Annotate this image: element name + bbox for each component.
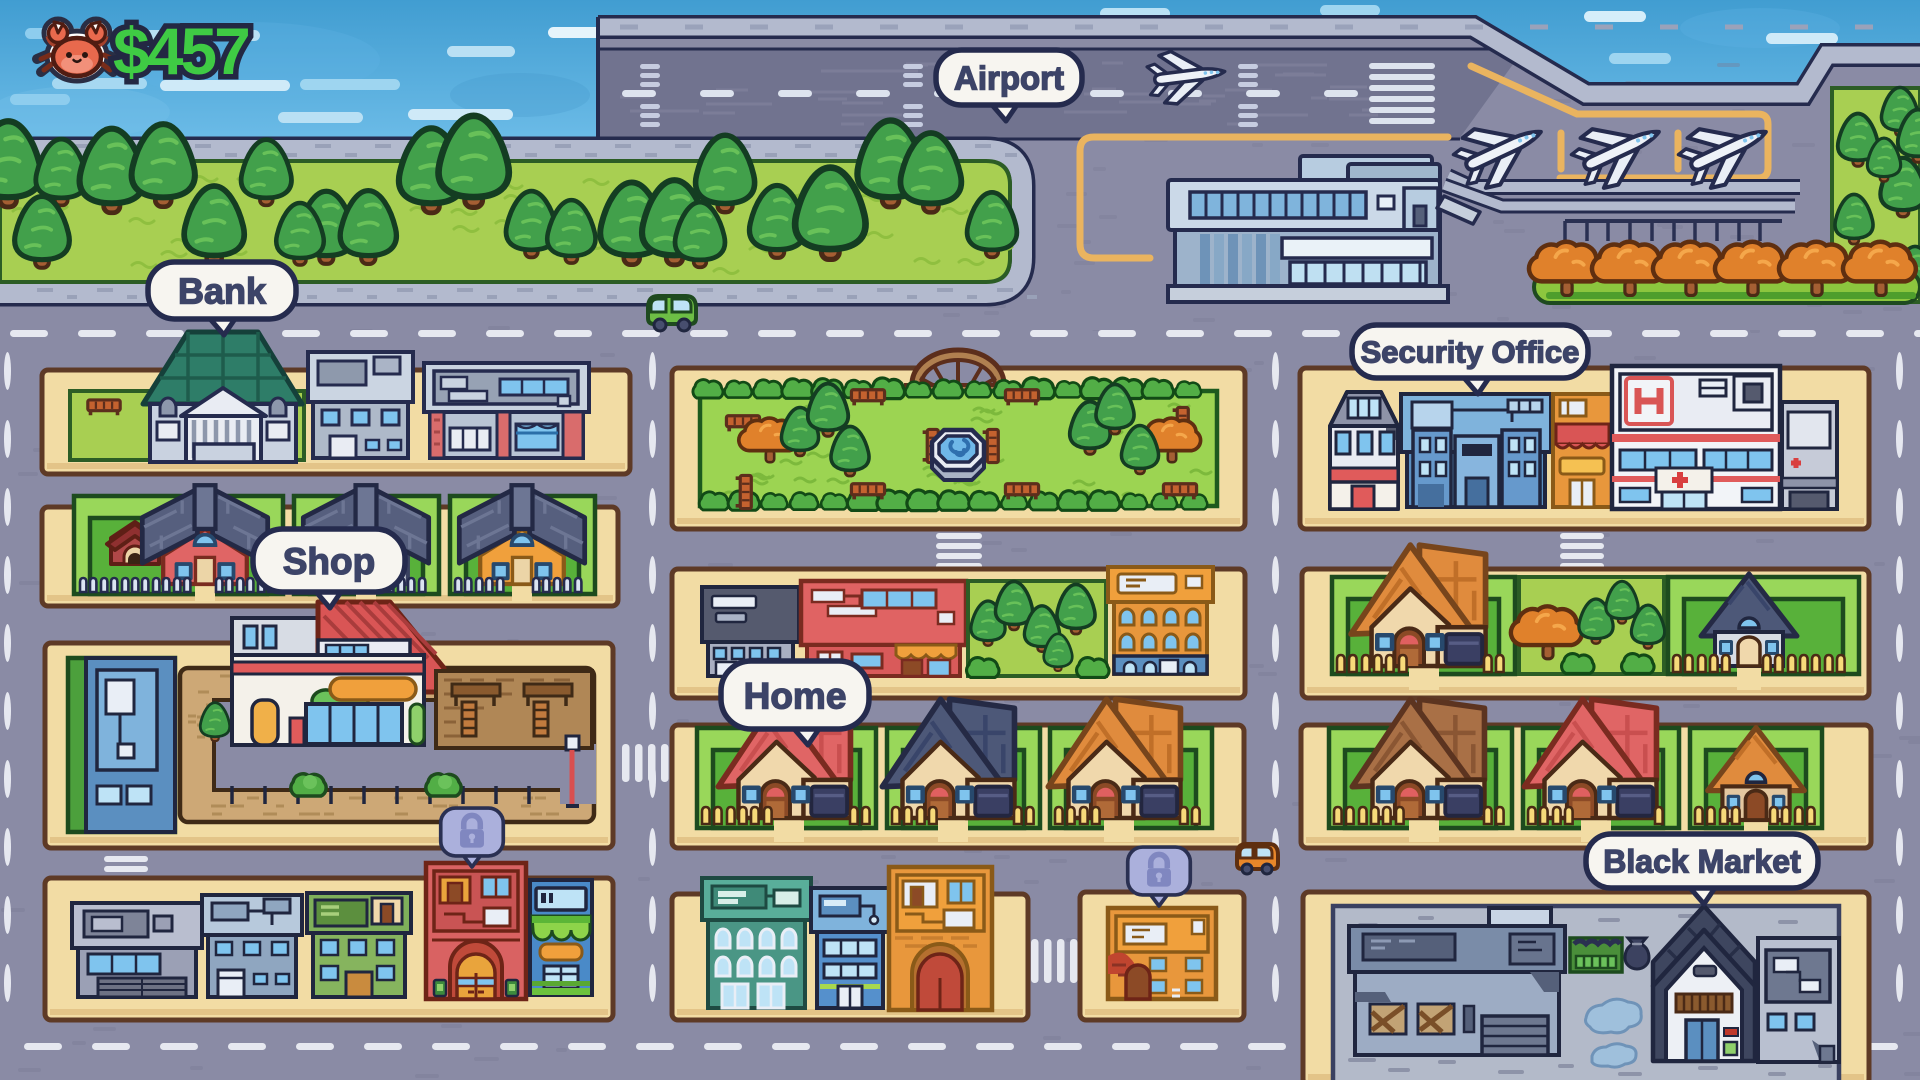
svg-text:Security Office: Security Office [1361,335,1580,370]
svg-text:Airport: Airport [954,59,1064,96]
svg-text:$457: $457 [113,14,248,88]
svg-text:Black Market: Black Market [1603,844,1801,880]
svg-text:Bank: Bank [178,270,267,311]
svg-text:Shop: Shop [283,541,375,582]
svg-text:Home: Home [744,675,847,716]
